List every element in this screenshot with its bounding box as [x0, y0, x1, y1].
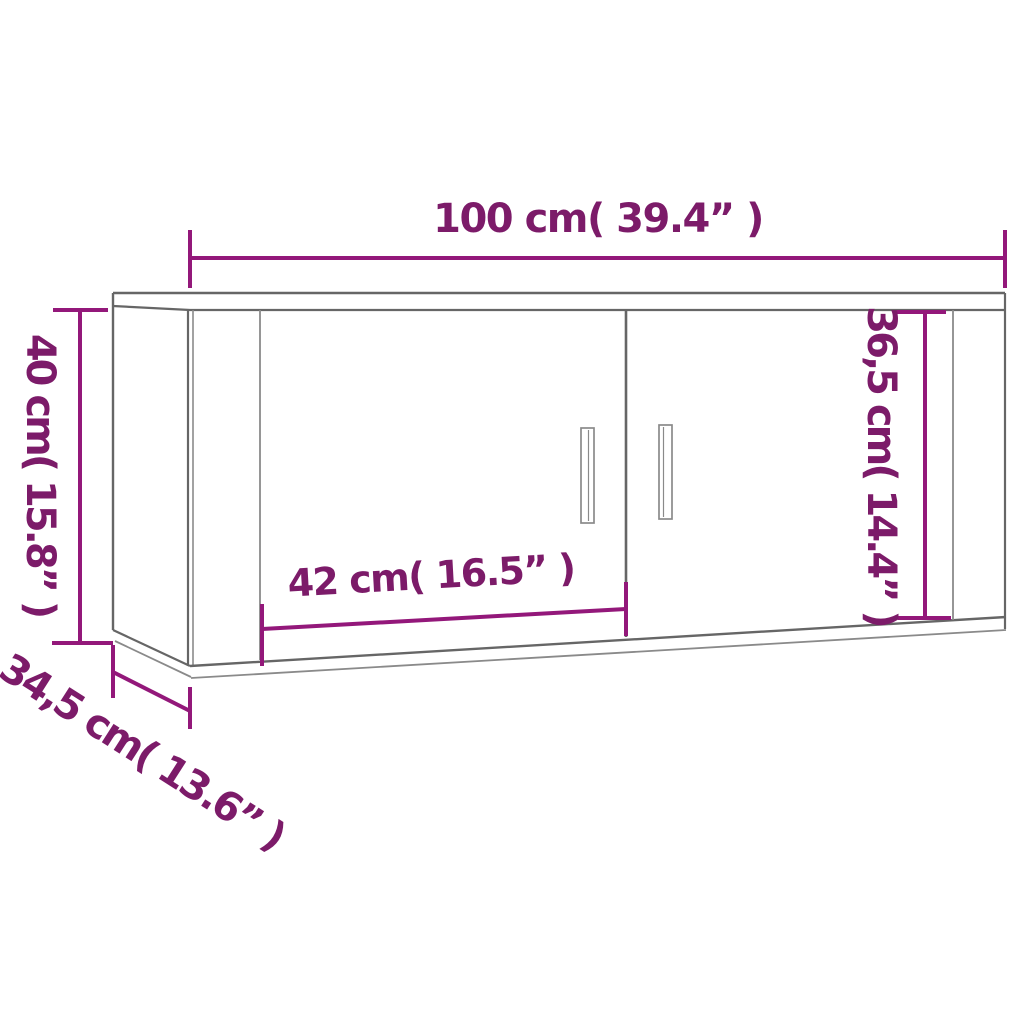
cabinet-doors: [260, 310, 953, 660]
width-dimension-label: 100 cm( 39.4” ): [348, 196, 848, 242]
right-door-handle: [659, 425, 672, 519]
dim-door-height: [897, 312, 951, 618]
side-bottom-edge-upper: [113, 630, 190, 666]
bottom-back-edge: [191, 630, 1006, 678]
dimension-diagram: 100 cm( 39.4” ) 40 cm( 15.8” ) 36,5 cm( …: [0, 0, 1024, 1024]
dim-depth-line: [113, 672, 190, 711]
door-height-dimension-label: 36,5 cm( 14.4” ): [857, 296, 905, 636]
height-dimension-label: 40 cm( 15.8” ): [17, 307, 63, 643]
left-door-handle: [581, 428, 594, 523]
dim-door-width-line: [262, 609, 626, 629]
side-bottom-edge-lower: [115, 641, 191, 677]
